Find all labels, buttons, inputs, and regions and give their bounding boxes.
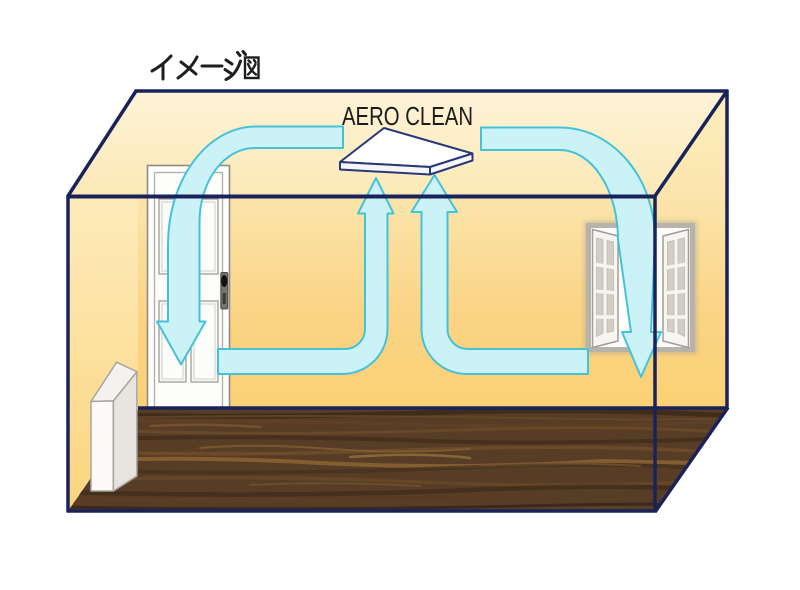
svg-text:AERO CLEAN: AERO CLEAN [342, 101, 473, 131]
